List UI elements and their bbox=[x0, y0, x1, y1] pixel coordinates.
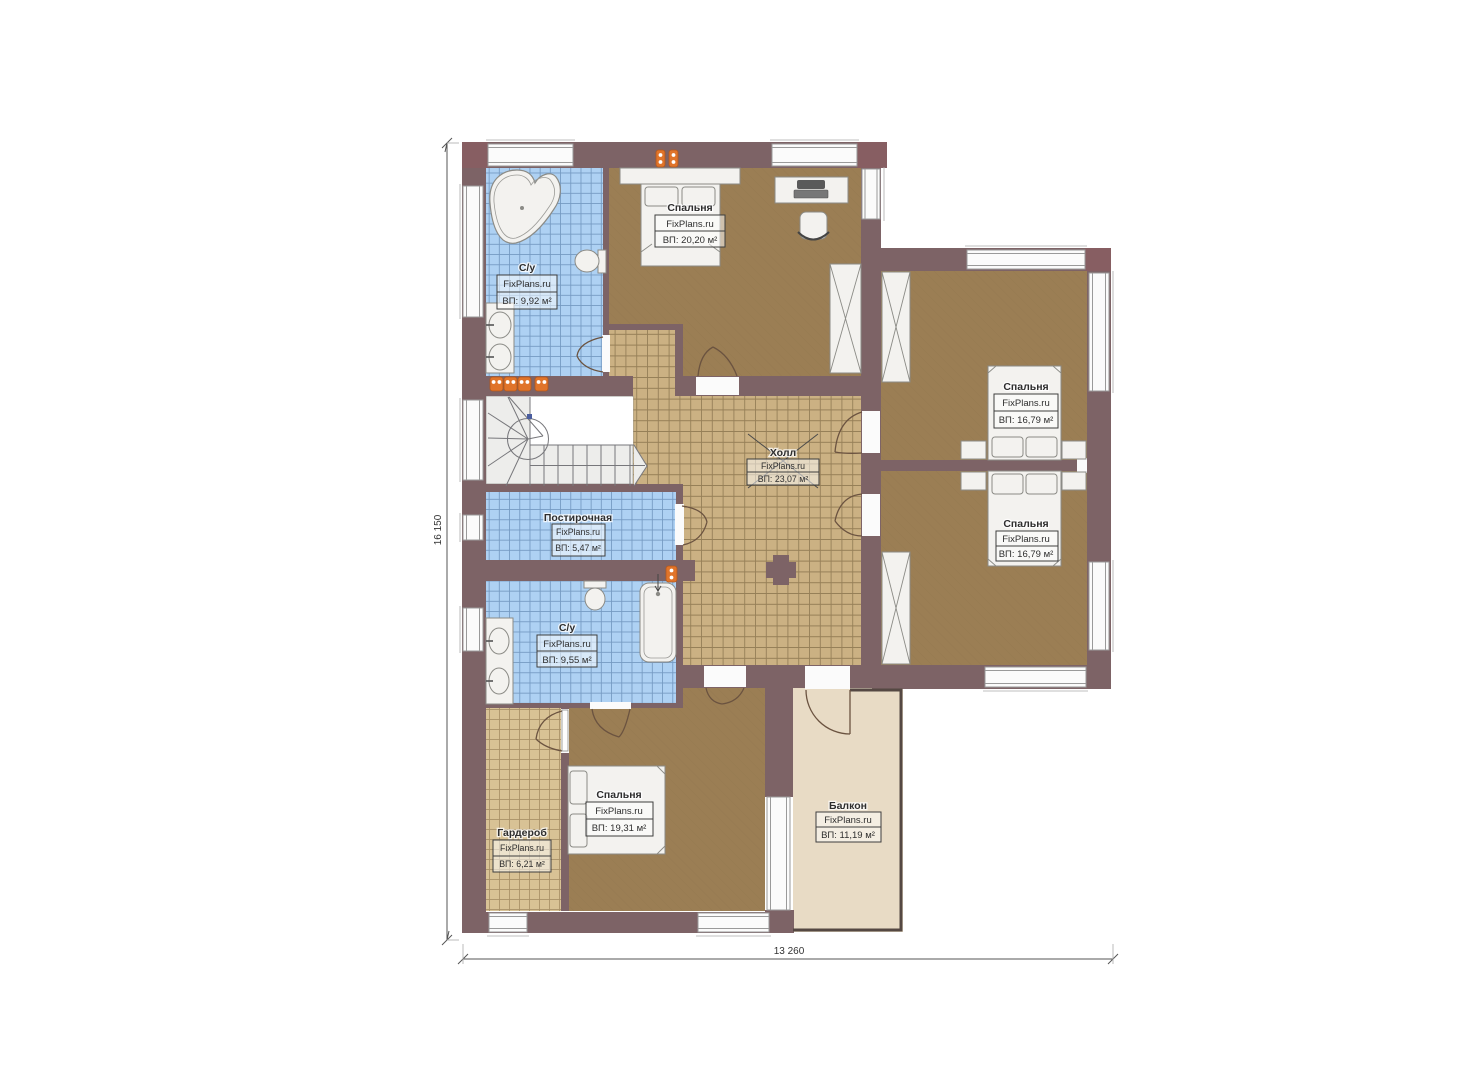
svg-text:ВП: 16,79 м²: ВП: 16,79 м² bbox=[999, 549, 1054, 560]
svg-text:Холл: Холл bbox=[770, 447, 796, 459]
svg-text:ВП: 16,79 м²: ВП: 16,79 м² bbox=[999, 415, 1054, 426]
svg-text:13 260: 13 260 bbox=[774, 946, 805, 957]
svg-text:FixPlans.ru: FixPlans.ru bbox=[824, 815, 872, 826]
svg-text:FixPlans.ru: FixPlans.ru bbox=[666, 219, 714, 230]
svg-text:ВП: 9,55 м²: ВП: 9,55 м² bbox=[542, 655, 591, 666]
svg-text:Постирочная: Постирочная bbox=[544, 512, 612, 524]
svg-text:С/у: С/у bbox=[559, 622, 576, 634]
svg-text:FixPlans.ru: FixPlans.ru bbox=[1002, 534, 1050, 545]
svg-text:ВП: 5,47 м²: ВП: 5,47 м² bbox=[555, 543, 601, 553]
svg-text:ВП: 9,92 м²: ВП: 9,92 м² bbox=[502, 296, 551, 307]
svg-text:Балкон: Балкон bbox=[829, 800, 867, 812]
svg-text:Спальня: Спальня bbox=[1003, 518, 1048, 530]
svg-text:С/у: С/у bbox=[519, 262, 536, 274]
svg-text:ВП: 6,21 м²: ВП: 6,21 м² bbox=[499, 859, 545, 869]
svg-text:FixPlans.ru: FixPlans.ru bbox=[761, 461, 805, 471]
svg-text:FixPlans.ru: FixPlans.ru bbox=[595, 806, 643, 817]
svg-text:Спальня: Спальня bbox=[667, 202, 712, 214]
svg-text:ВП: 11,19 м²: ВП: 11,19 м² bbox=[821, 830, 875, 841]
svg-text:ВП: 20,20 м²: ВП: 20,20 м² bbox=[663, 235, 718, 246]
svg-text:ВП: 19,31 м²: ВП: 19,31 м² bbox=[592, 823, 647, 834]
svg-text:FixPlans.ru: FixPlans.ru bbox=[543, 639, 591, 650]
svg-text:FixPlans.ru: FixPlans.ru bbox=[556, 527, 600, 537]
svg-text:Гардероб: Гардероб bbox=[497, 827, 547, 839]
svg-text:Спальня: Спальня bbox=[1003, 381, 1048, 393]
svg-text:Спальня: Спальня bbox=[596, 789, 641, 801]
svg-text:FixPlans.ru: FixPlans.ru bbox=[500, 843, 544, 853]
svg-text:16 150: 16 150 bbox=[433, 514, 444, 545]
svg-text:ВП: 23,07 м²: ВП: 23,07 м² bbox=[758, 474, 809, 484]
svg-text:FixPlans.ru: FixPlans.ru bbox=[1002, 398, 1050, 409]
svg-text:FixPlans.ru: FixPlans.ru bbox=[503, 279, 551, 290]
